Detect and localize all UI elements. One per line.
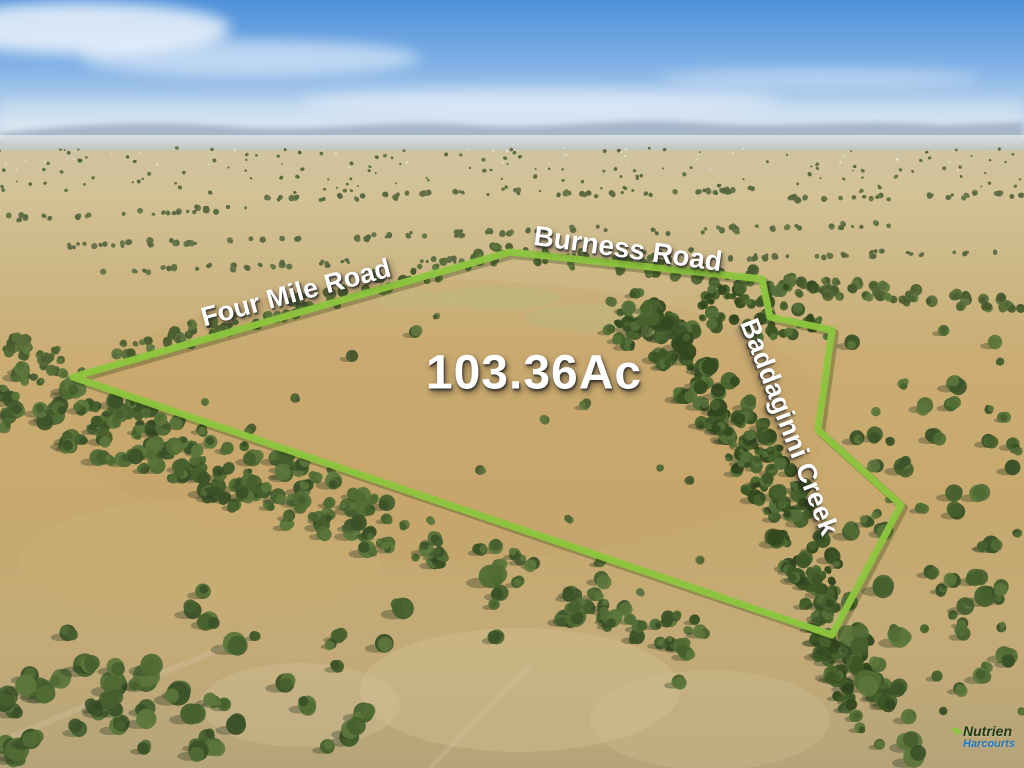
brand-row: Nutrien <box>953 724 1015 739</box>
brand-sub-name: Harcourts <box>963 739 1015 751</box>
brand-name: Nutrien <box>963 724 1012 739</box>
area-label: 103.36Ac <box>426 346 642 401</box>
brand-logo: Nutrien Harcourts <box>953 724 1015 750</box>
aerial-property-photo: Four Mile Road Burness Road 103.36Ac Bad… <box>0 0 1024 768</box>
nutrien-leaf-icon <box>952 726 962 736</box>
